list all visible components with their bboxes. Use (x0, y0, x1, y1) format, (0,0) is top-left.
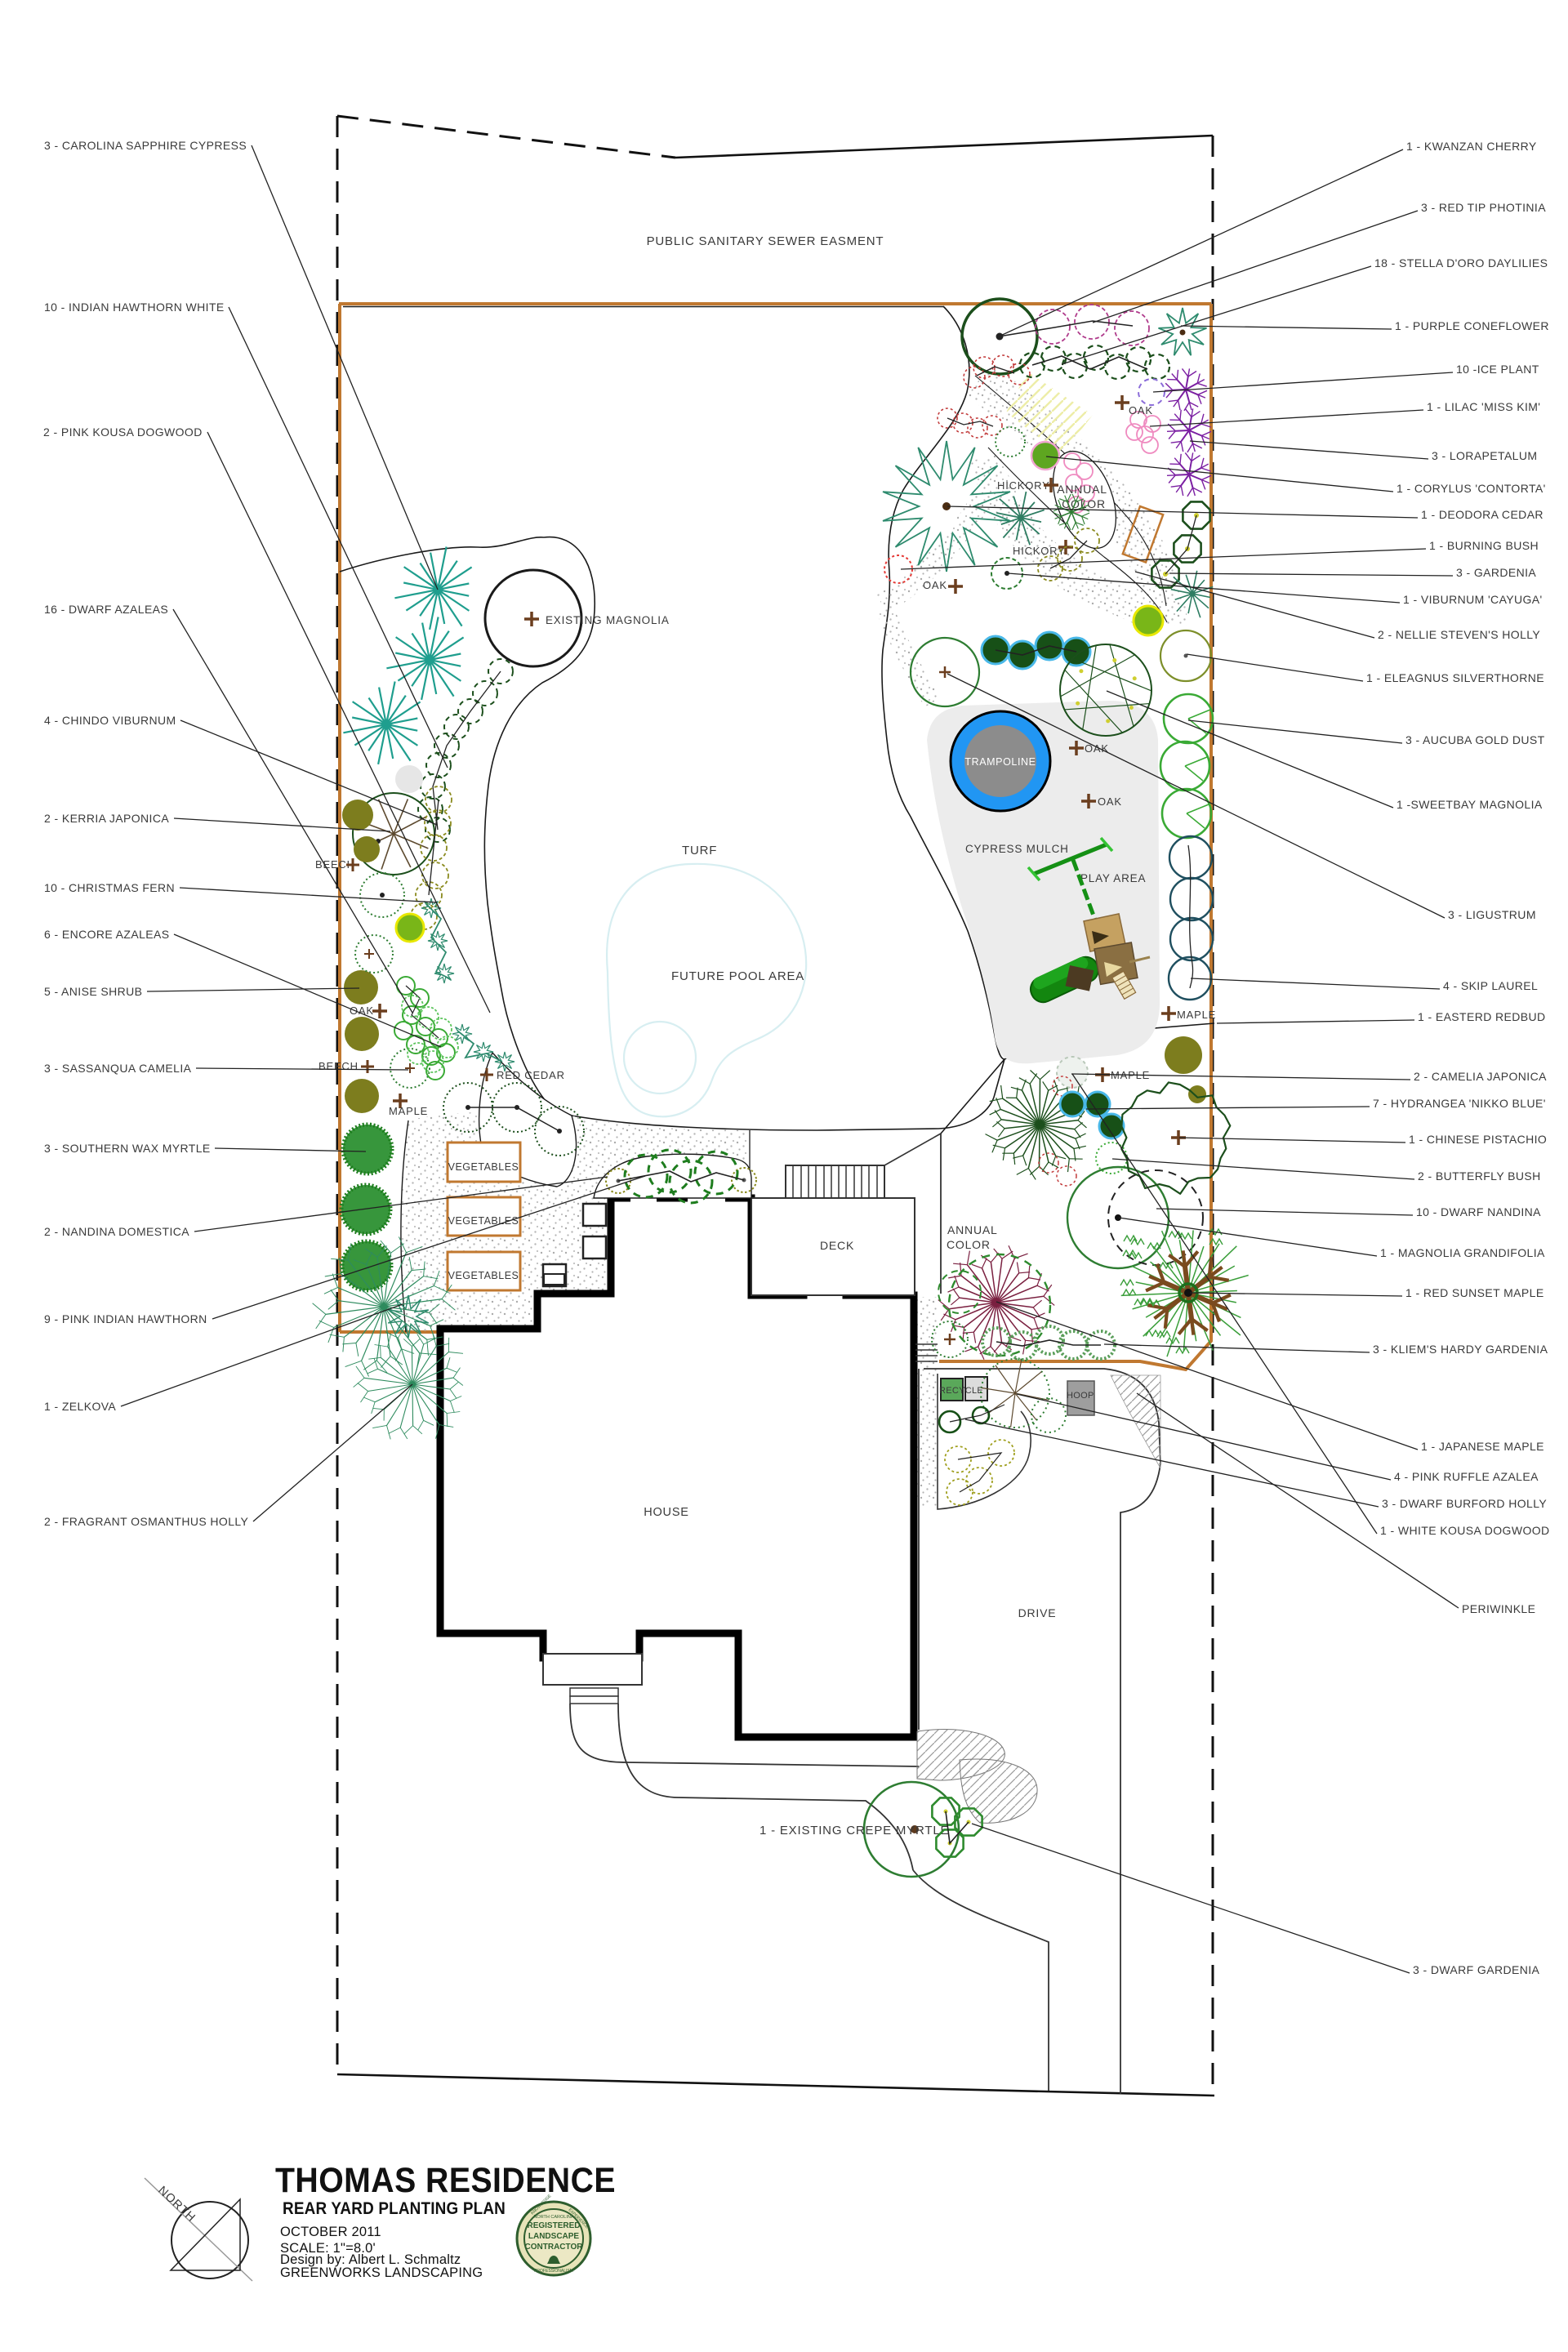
svg-text:OAK: OAK (923, 579, 947, 591)
svg-text:HOOP: HOOP (1067, 1391, 1094, 1401)
svg-text:10 - DWARF NANDINA: 10 - DWARF NANDINA (1416, 1205, 1541, 1218)
svg-text:7 - HYDRANGEA 'NIKKO BLUE': 7 - HYDRANGEA 'NIKKO BLUE' (1373, 1097, 1546, 1110)
svg-text:THOMAS RESIDENCE: THOMAS RESIDENCE (275, 2161, 616, 2200)
svg-text:3 - GARDENIA: 3 - GARDENIA (1456, 566, 1536, 579)
svg-text:HICKORY: HICKORY (997, 479, 1050, 492)
svg-text:PUBLIC SANITARY SEWER EASMENT: PUBLIC SANITARY SEWER EASMENT (647, 234, 884, 248)
svg-text:2 - NELLIE STEVEN'S HOLLY: 2 - NELLIE STEVEN'S HOLLY (1378, 628, 1540, 641)
svg-text:RECYCLE: RECYCLE (939, 1386, 983, 1396)
svg-text:3 - CAROLINA SAPPHIRE CYPRESS: 3 - CAROLINA SAPPHIRE CYPRESS (44, 139, 247, 152)
svg-text:ANNUAL: ANNUAL (947, 1223, 998, 1236)
svg-text:1 - CORYLUS 'CONTORTA': 1 - CORYLUS 'CONTORTA' (1396, 482, 1546, 495)
svg-text:1 - ZELKOVA: 1 - ZELKOVA (44, 1400, 116, 1413)
svg-text:CYPRESS MULCH: CYPRESS MULCH (965, 843, 1069, 855)
svg-text:5 - ANISE SHRUB: 5 - ANISE SHRUB (44, 985, 142, 998)
svg-text:1 - DEODORA CEDAR: 1 - DEODORA CEDAR (1421, 508, 1543, 521)
svg-text:OAK: OAK (1098, 795, 1122, 808)
svg-text:VEGETABLES: VEGETABLES (448, 1161, 519, 1173)
svg-text:10 - INDIAN HAWTHORN WHITE: 10 - INDIAN HAWTHORN WHITE (44, 301, 225, 314)
svg-text:1 - WHITE KOUSA DOGWOOD: 1 - WHITE KOUSA DOGWOOD (1380, 1524, 1550, 1537)
svg-text:1 - PURPLE CONEFLOWER: 1 - PURPLE CONEFLOWER (1395, 319, 1549, 332)
svg-text:10 -ICE PLANT: 10 -ICE PLANT (1456, 363, 1539, 376)
svg-text:VEGETABLES: VEGETABLES (448, 1270, 519, 1281)
svg-text:3 - LIGUSTRUM: 3 - LIGUSTRUM (1448, 908, 1536, 921)
svg-text:LANDSCAPE: LANDSCAPE (528, 2232, 580, 2241)
svg-text:1 - MAGNOLIA GRANDIFOLIA: 1 - MAGNOLIA GRANDIFOLIA (1380, 1246, 1545, 1259)
svg-text:1 - EASTERD REDBUD: 1 - EASTERD REDBUD (1418, 1010, 1546, 1023)
svg-text:PROFESSIONALISM: PROFESSIONALISM (534, 2269, 573, 2274)
svg-text:3 - DWARF BURFORD HOLLY: 3 - DWARF BURFORD HOLLY (1382, 1497, 1547, 1510)
svg-text:3 - RED TIP PHOTINIA: 3 - RED TIP PHOTINIA (1421, 201, 1546, 214)
svg-text:OAK: OAK (1129, 404, 1153, 416)
svg-text:1 - EXISTING CREPE MYRTLE: 1 - EXISTING CREPE MYRTLE (759, 1824, 949, 1837)
svg-text:EXISTING MAGNOLIA: EXISTING MAGNOLIA (546, 614, 670, 626)
svg-text:16 - DWARF AZALEAS: 16 - DWARF AZALEAS (44, 603, 168, 616)
svg-text:2 - CAMELIA JAPONICA: 2 - CAMELIA JAPONICA (1414, 1070, 1547, 1083)
svg-text:FUTURE POOL AREA: FUTURE POOL AREA (671, 969, 804, 983)
svg-text:1 - BURNING BUSH: 1 - BURNING BUSH (1429, 539, 1539, 552)
svg-text:OCTOBER 2011: OCTOBER 2011 (280, 2225, 381, 2239)
svg-text:2 - NANDINA DOMESTICA: 2 - NANDINA DOMESTICA (44, 1225, 189, 1238)
svg-text:OAK: OAK (1085, 742, 1109, 755)
svg-text:NORTH CAROLINA: NORTH CAROLINA (533, 2215, 573, 2220)
svg-text:2 - FRAGRANT OSMANTHUS HOLLY: 2 - FRAGRANT OSMANTHUS HOLLY (44, 1515, 249, 1528)
svg-text:1 - LILAC 'MISS KIM': 1 - LILAC 'MISS KIM' (1427, 400, 1540, 413)
svg-text:1 - KWANZAN CHERRY: 1 - KWANZAN CHERRY (1406, 140, 1537, 153)
svg-text:18 - STELLA D'ORO DAYLILIES: 18 - STELLA D'ORO DAYLILIES (1374, 256, 1548, 269)
svg-text:2 - KERRIA JAPONICA: 2 - KERRIA JAPONICA (44, 812, 169, 825)
svg-text:4 - CHINDO VIBURNUM: 4 - CHINDO VIBURNUM (44, 714, 176, 727)
svg-text:GREENWORKS LANDSCAPING: GREENWORKS LANDSCAPING (280, 2265, 483, 2280)
svg-text:CONTRACTOR: CONTRACTOR (525, 2243, 584, 2252)
svg-text:REGISTERED: REGISTERED (527, 2221, 580, 2230)
svg-text:HOUSE: HOUSE (644, 1506, 689, 1519)
svg-text:1 - JAPANESE MAPLE: 1 - JAPANESE MAPLE (1421, 1440, 1544, 1453)
svg-text:RED CEDAR: RED CEDAR (497, 1069, 565, 1081)
svg-text:BEECH: BEECH (318, 1060, 359, 1072)
svg-text:4 - PINK RUFFLE AZALEA: 4 - PINK RUFFLE AZALEA (1394, 1470, 1539, 1483)
svg-text:MAPLE: MAPLE (1177, 1009, 1216, 1021)
svg-text:3 - KLIEM'S HARDY GARDENIA: 3 - KLIEM'S HARDY GARDENIA (1373, 1343, 1548, 1356)
svg-text:1 - CHINESE PISTACHIO: 1 - CHINESE PISTACHIO (1409, 1133, 1547, 1146)
svg-text:10 - CHRISTMAS FERN: 10 - CHRISTMAS FERN (44, 881, 175, 894)
svg-text:3 - LORAPETALUM: 3 - LORAPETALUM (1432, 449, 1537, 462)
svg-text:1 - RED SUNSET MAPLE: 1 - RED SUNSET MAPLE (1405, 1286, 1544, 1299)
svg-text:2 - PINK KOUSA DOGWOOD: 2 - PINK KOUSA DOGWOOD (43, 425, 203, 439)
svg-text:PLAY AREA: PLAY AREA (1080, 872, 1146, 884)
svg-text:3 - SOUTHERN WAX MYRTLE: 3 - SOUTHERN WAX MYRTLE (44, 1142, 211, 1155)
svg-text:DRIVE: DRIVE (1018, 1606, 1057, 1619)
svg-text:3 - DWARF GARDENIA: 3 - DWARF GARDENIA (1413, 1963, 1540, 1976)
svg-text:MAPLE: MAPLE (389, 1105, 428, 1117)
svg-text:1 -SWEETBAY MAGNOLIA: 1 -SWEETBAY MAGNOLIA (1396, 798, 1543, 811)
svg-text:TRAMPOLINE: TRAMPOLINE (964, 756, 1036, 768)
svg-text:1 - VIBURNUM 'CAYUGA': 1 - VIBURNUM 'CAYUGA' (1403, 593, 1543, 606)
svg-text:TURF: TURF (682, 844, 717, 857)
svg-text:COLOR: COLOR (947, 1238, 991, 1251)
svg-text:REAR YARD PLANTING PLAN: REAR YARD PLANTING PLAN (283, 2198, 506, 2218)
svg-text:6 - ENCORE AZALEAS: 6 - ENCORE AZALEAS (44, 928, 169, 941)
svg-text:OAK: OAK (350, 1004, 374, 1017)
svg-text:ANNUAL: ANNUAL (1057, 483, 1107, 496)
svg-text:9 - PINK INDIAN HAWTHORN: 9 - PINK INDIAN HAWTHORN (44, 1312, 207, 1325)
svg-text:2 - BUTTERFLY BUSH: 2 - BUTTERFLY BUSH (1418, 1169, 1541, 1183)
svg-text:3 - AUCUBA GOLD DUST: 3 - AUCUBA GOLD DUST (1405, 733, 1545, 746)
svg-text:DECK: DECK (820, 1239, 854, 1252)
svg-text:PERIWINKLE: PERIWINKLE (1462, 1602, 1535, 1615)
svg-text:3 - SASSANQUA CAMELIA: 3 - SASSANQUA CAMELIA (44, 1062, 192, 1075)
svg-text:1 - ELEAGNUS SILVERTHORNE: 1 - ELEAGNUS SILVERTHORNE (1366, 671, 1544, 684)
svg-text:4 - SKIP LAUREL: 4 - SKIP LAUREL (1443, 979, 1538, 992)
